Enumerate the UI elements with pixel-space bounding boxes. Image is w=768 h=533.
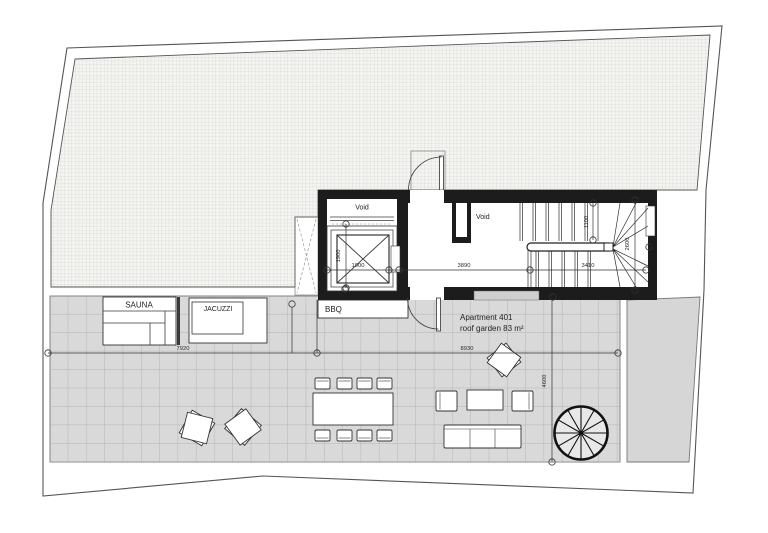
sauna-jacuzzi-divider — [177, 297, 180, 345]
dim-elevator-depth: 1900 — [336, 250, 342, 263]
spiral-stair — [555, 407, 608, 460]
sauna-label: SAUNA — [125, 301, 153, 310]
coffee-table — [467, 390, 503, 410]
stair-handrail — [527, 243, 613, 251]
roof-access-strip — [295, 217, 318, 295]
jacuzzi-box — [189, 298, 267, 343]
stair-window — [646, 206, 655, 236]
apartment-number-label: Apartment 401 — [460, 313, 513, 322]
sauna-unit: SAUNA — [103, 297, 176, 345]
dim-elevator-width: 1900 — [352, 263, 365, 269]
dim-terrace-right: 8930 — [461, 346, 474, 352]
sofa — [444, 425, 521, 448]
floor-plan-page: SAUNA JACUZZI BBQ Void — [0, 0, 768, 533]
door-leaf-top — [440, 156, 444, 190]
dim-stair-run: 3410 — [582, 263, 595, 269]
dim-stair-flight-width: 1100 — [584, 216, 590, 228]
jacuzzi-label: JACUZZI — [204, 306, 233, 313]
lobby-void-label: Void — [476, 214, 490, 221]
bbq-label: BBQ — [325, 305, 342, 314]
lobby-glazing — [474, 291, 539, 300]
dim-hall-width: 3890 — [458, 263, 471, 269]
dim-stair-depth: 2600 — [625, 238, 631, 251]
floor-plan-drawing: SAUNA JACUZZI BBQ Void — [0, 0, 768, 533]
apartment-area-label: roof garden 83 m² — [460, 324, 524, 333]
lounge-chair-right — [512, 391, 533, 411]
jacuzzi-unit: JACUZZI — [189, 298, 267, 343]
dim-terrace-depth: 4600 — [542, 375, 548, 388]
lounge-chair-left — [436, 391, 457, 411]
elevator-door — [391, 246, 400, 272]
door-leaf-bottom — [437, 298, 441, 331]
bbq-unit: BBQ — [318, 300, 408, 318]
terrace-side-strip — [627, 297, 700, 462]
dim-terrace-left: 7920 — [177, 346, 190, 352]
elevator-void-label: Void — [355, 205, 369, 212]
stair-handrail-end — [604, 243, 613, 251]
dining-table — [313, 393, 393, 425]
door-opening-top — [410, 190, 444, 203]
